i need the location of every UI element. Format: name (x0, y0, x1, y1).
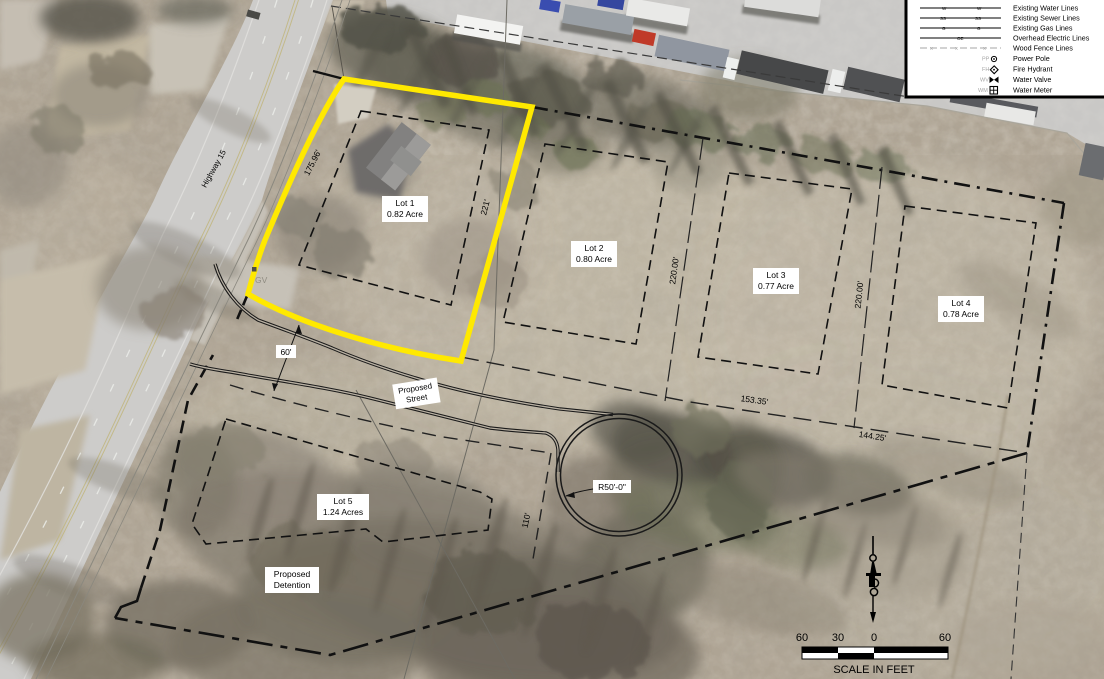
svg-text:PP: PP (982, 57, 990, 63)
svg-text:Water Meter: Water Meter (1013, 86, 1053, 95)
svg-text:Existing Water Lines: Existing Water Lines (1013, 4, 1079, 13)
svg-text:WV: WV (980, 78, 989, 84)
svg-text:X: X (955, 46, 958, 51)
svg-text:0.82 Acre: 0.82 Acre (387, 209, 423, 219)
svg-text:60: 60 (939, 632, 951, 644)
svg-text:30: 30 (832, 632, 844, 644)
svg-text:60: 60 (796, 632, 808, 644)
svg-text:Lot 4: Lot 4 (952, 298, 971, 308)
svg-text:SCALE IN FEET: SCALE IN FEET (833, 664, 915, 676)
svg-text:Detention: Detention (274, 580, 311, 590)
svg-text:Fire Hydrant: Fire Hydrant (1013, 65, 1053, 74)
svg-text:0.77 Acre: 0.77 Acre (758, 281, 794, 291)
svg-text:FH: FH (982, 67, 989, 73)
svg-text:0.80 Acre: 0.80 Acre (576, 254, 612, 264)
svg-text:Lot 1: Lot 1 (396, 198, 415, 208)
svg-text:SS: SS (940, 16, 946, 21)
svg-text:R50'-0": R50'-0" (598, 482, 626, 492)
svg-text:Water Valve: Water Valve (1013, 75, 1051, 84)
svg-text:X: X (930, 46, 933, 51)
svg-text:Lot 5: Lot 5 (334, 496, 353, 506)
svg-text:WM: WM (978, 88, 988, 94)
svg-text:Lot 2: Lot 2 (585, 243, 604, 253)
svg-text:GV: GV (255, 275, 268, 285)
svg-text:X: X (983, 46, 986, 51)
svg-text:Wood Fence Lines: Wood Fence Lines (1013, 44, 1073, 53)
svg-text:Proposed: Proposed (274, 569, 311, 579)
svg-text:Existing Sewer Lines: Existing Sewer Lines (1013, 14, 1080, 23)
svg-text:0.78 Acre: 0.78 Acre (943, 309, 979, 319)
svg-text:G: G (977, 26, 981, 31)
svg-text:Lot 3: Lot 3 (767, 270, 786, 280)
svg-text:Overhead Electric Lines: Overhead Electric Lines (1013, 34, 1090, 43)
svg-text:OE: OE (957, 36, 964, 41)
svg-text:SS: SS (975, 16, 981, 21)
svg-text:Power Pole: Power Pole (1013, 54, 1050, 63)
svg-text:1.24 Acres: 1.24 Acres (323, 507, 363, 517)
svg-text:60': 60' (280, 347, 291, 357)
svg-text:G: G (942, 26, 946, 31)
svg-text:Existing Gas Lines: Existing Gas Lines (1013, 24, 1073, 33)
svg-text:0: 0 (871, 632, 877, 644)
